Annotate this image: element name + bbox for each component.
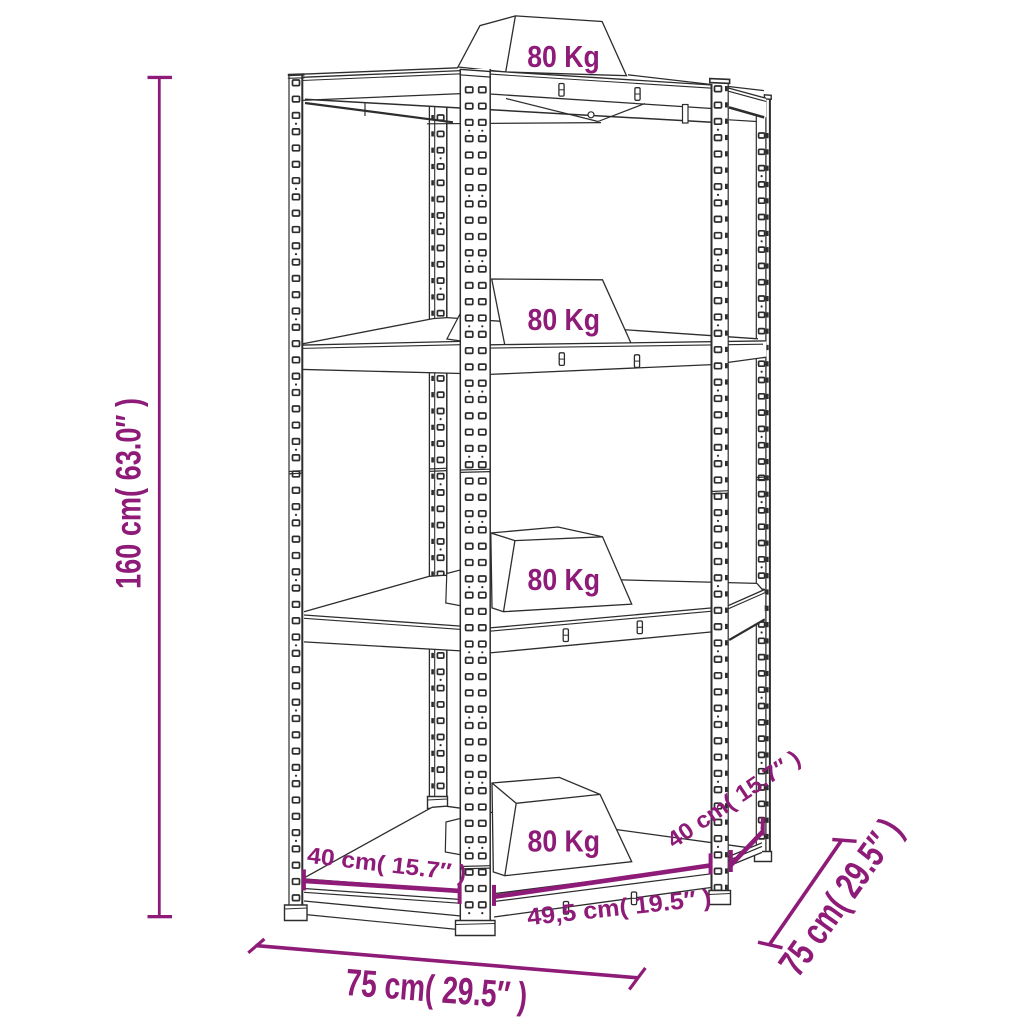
- svg-text:80 Kg: 80 Kg: [528, 302, 601, 337]
- svg-text:160 cm( 63.0″ ): 160 cm( 63.0″ ): [110, 398, 149, 589]
- svg-text:80 Kg: 80 Kg: [528, 824, 601, 859]
- svg-text:80 Kg: 80 Kg: [528, 562, 601, 597]
- svg-text:80 Kg: 80 Kg: [527, 39, 600, 74]
